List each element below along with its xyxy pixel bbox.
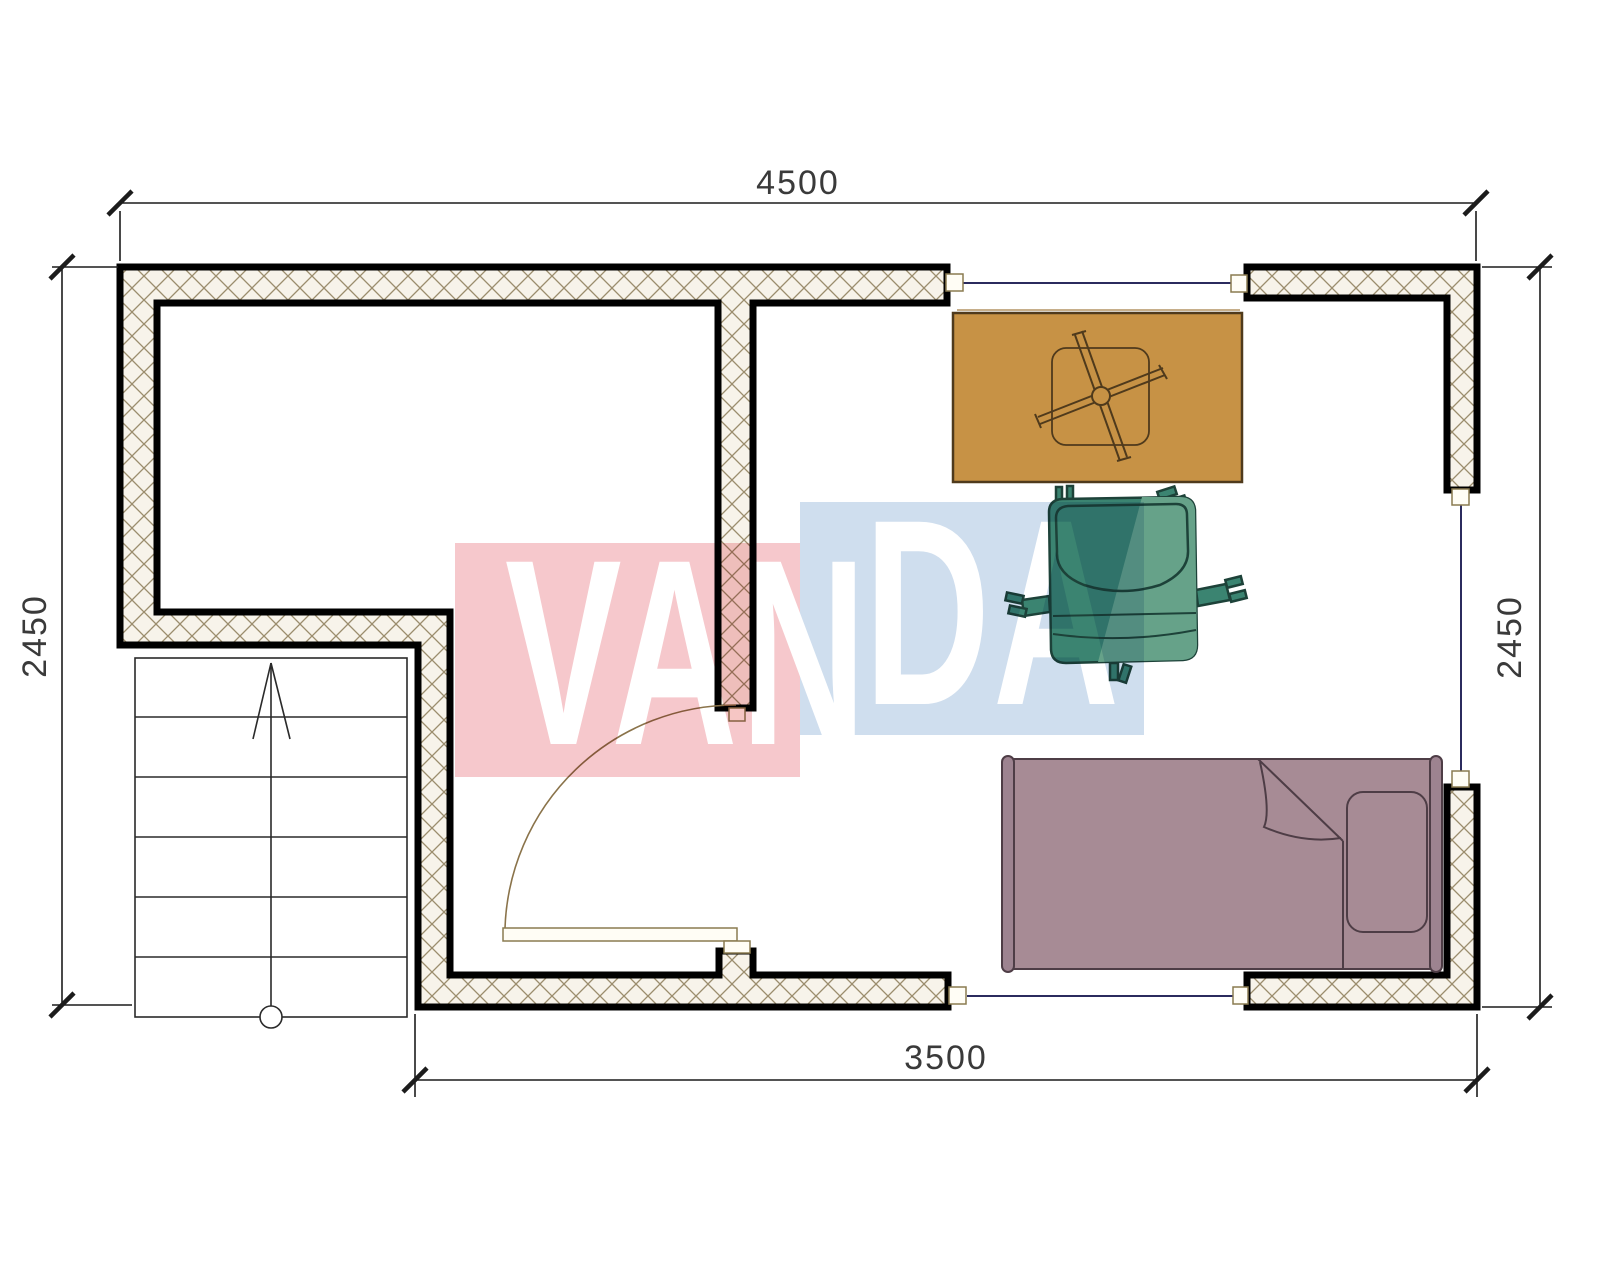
window-connector-box	[1231, 275, 1247, 292]
table	[953, 313, 1242, 482]
bed	[1002, 756, 1442, 972]
window-connector-box	[949, 987, 966, 1004]
door-hinge-block	[729, 708, 745, 721]
chair-foot	[1067, 486, 1073, 499]
chair-foot	[1110, 663, 1118, 680]
stairs-start-circle	[260, 1006, 282, 1028]
dimension-right-label: 2450	[1491, 595, 1529, 679]
window-connector-box	[1233, 987, 1248, 1004]
bed-mattress	[1010, 759, 1434, 969]
dimension-bottom-label: 3500	[904, 1039, 988, 1077]
dimension-left-label: 2450	[16, 594, 54, 678]
window-connector-box	[1452, 771, 1469, 787]
window-connector-box	[946, 274, 963, 291]
dimension-top-label: 4500	[756, 164, 840, 202]
plan-layer: 4500 2450 2450	[0, 0, 1600, 1280]
window-connector-box	[1452, 489, 1469, 505]
bed-headboard	[1002, 756, 1014, 972]
chair-armrest-left-end	[1008, 605, 1026, 616]
chair-armrest-left-end	[1005, 592, 1023, 603]
stairs	[135, 658, 407, 1028]
bed-footboard	[1430, 756, 1442, 972]
door-threshold	[724, 941, 750, 953]
floor-plan-canvas: VAN DA	[0, 0, 1600, 1280]
door-leaf	[503, 928, 737, 941]
